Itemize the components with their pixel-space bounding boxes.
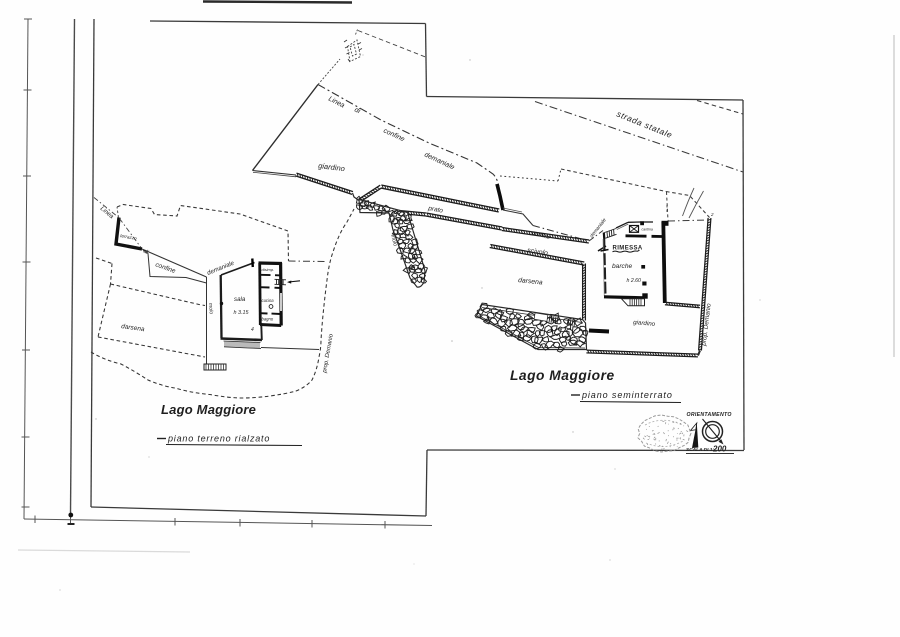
svg-text:piano terreno rialzato: piano terreno rialzato (167, 434, 270, 444)
svg-text:bagno: bagno (262, 317, 274, 322)
svg-text:h 2.60: h 2.60 (627, 278, 642, 284)
svg-text:cucina: cucina (262, 298, 275, 303)
svg-text:molo: molo (207, 303, 214, 315)
svg-text:piano seminterrato: piano seminterrato (581, 390, 673, 400)
svg-text:Lago Maggiore: Lago Maggiore (510, 368, 615, 383)
svg-text:ORIENTAMENTO: ORIENTAMENTO (687, 412, 732, 418)
svg-text:h 3.15: h 3.15 (234, 310, 250, 316)
svg-text:4: 4 (251, 327, 254, 333)
svg-text:SCALA DI 1:: SCALA DI 1: (686, 447, 714, 453)
svg-text:Lago Maggiore: Lago Maggiore (161, 402, 256, 417)
svg-text:cantina: cantina (642, 228, 653, 232)
svg-text:disimp.: disimp. (262, 267, 275, 272)
svg-text:200: 200 (712, 445, 727, 454)
svg-text:barche: barche (612, 263, 632, 270)
svg-text:2: 2 (710, 212, 714, 217)
svg-text:sala: sala (234, 296, 246, 303)
